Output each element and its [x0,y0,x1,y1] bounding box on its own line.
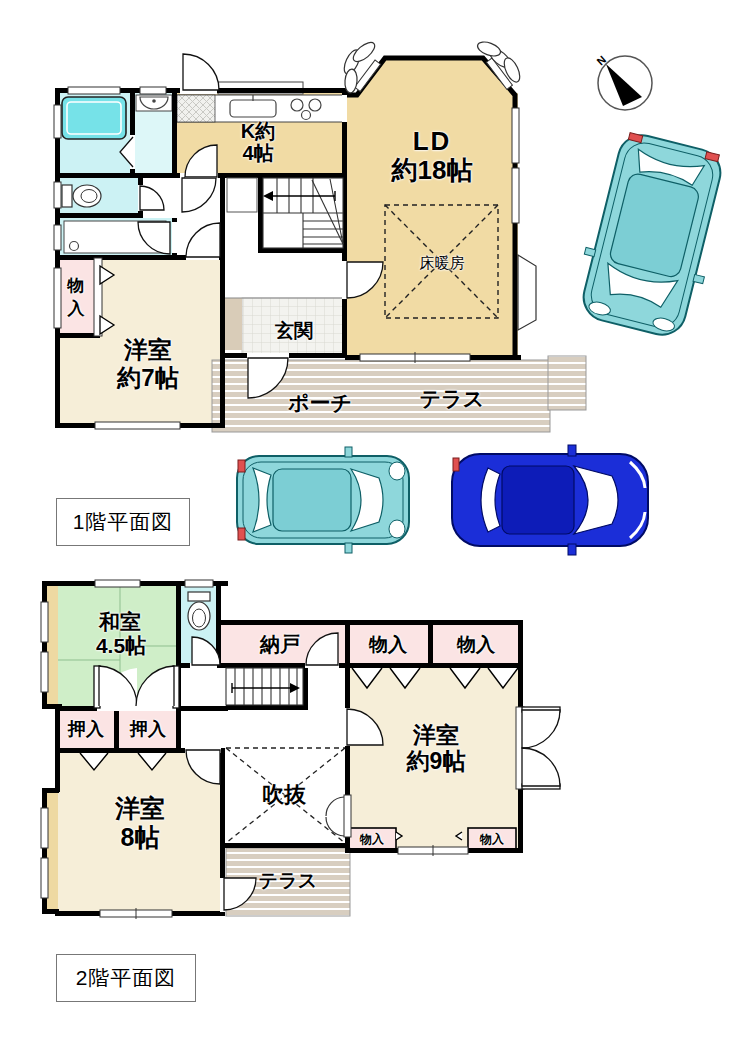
label-west8-2: 8帖 [121,824,160,850]
label-terrace-1f: テラス [420,388,484,410]
label-oshiire-2: 押入 [130,720,166,739]
label-washitsu-1: 和室 [99,611,141,633]
car-teal-horizontal-icon [237,447,409,553]
terrace-extension [548,356,586,410]
label-ld-2: 約18帖 [392,157,473,184]
label-monoiri-small-2: 物入 [480,833,504,846]
label-storage-1f-2: 入 [68,300,85,318]
sink-icon [230,100,276,117]
label-washitsu-2: 4.5帖 [96,635,146,657]
label-west7-2: 約7帖 [117,365,178,390]
label-floor-heating: 床暖房 [420,255,465,271]
label-monoiri-top-1: 物入 [369,635,407,655]
label-void: 吹抜 [262,783,306,806]
bathtub-icon [62,97,126,139]
car-blue-icon [452,445,648,555]
stairs-2f [226,668,303,705]
label-monoiri-top-2: 物入 [457,635,495,655]
washbasin-icon [136,95,172,111]
car-teal-vertical-icon [570,128,734,342]
room-storage-1f [58,260,97,336]
label-ld-1: LD [413,128,452,155]
label-monoiri-small-1: 物入 [360,833,384,846]
toilet-icon-2f [188,592,210,630]
label-west9-2: 約9帖 [407,749,466,773]
floor1-title-box: 1階平面図 [56,498,190,546]
void-window-arcs [326,797,344,836]
floor2-title-box: 2階平面図 [56,954,196,1002]
label-terrace-2f: テラス [259,871,317,891]
label-kitchen-1: K約 [241,121,275,142]
compass-icon: N [594,53,652,110]
toilet-icon-1f [62,185,101,207]
bay-window-west8 [47,790,58,910]
label-oshiire-1: 押入 [68,720,104,739]
label-porch: ポーチ [288,392,352,414]
floorplan-page: N [0,0,740,1042]
label-nando: 納戸 [260,634,300,655]
label-west9-1: 洋室 [413,723,459,747]
label-west7-1: 洋室 [124,337,172,362]
floor1-title: 1階平面図 [73,508,174,536]
label-kitchen-2: 4帖 [242,143,273,164]
closet-under-stairs [227,178,257,212]
stairs-1f [263,178,343,248]
bay-window-washitsu [47,586,58,706]
room-ld [345,57,518,358]
label-entrance: 玄関 [275,321,313,341]
ld-bay-window [518,255,536,330]
floor2-title: 2階平面図 [76,964,177,992]
label-storage-1f-1: 物 [68,277,85,295]
label-west8-1: 洋室 [115,795,165,821]
